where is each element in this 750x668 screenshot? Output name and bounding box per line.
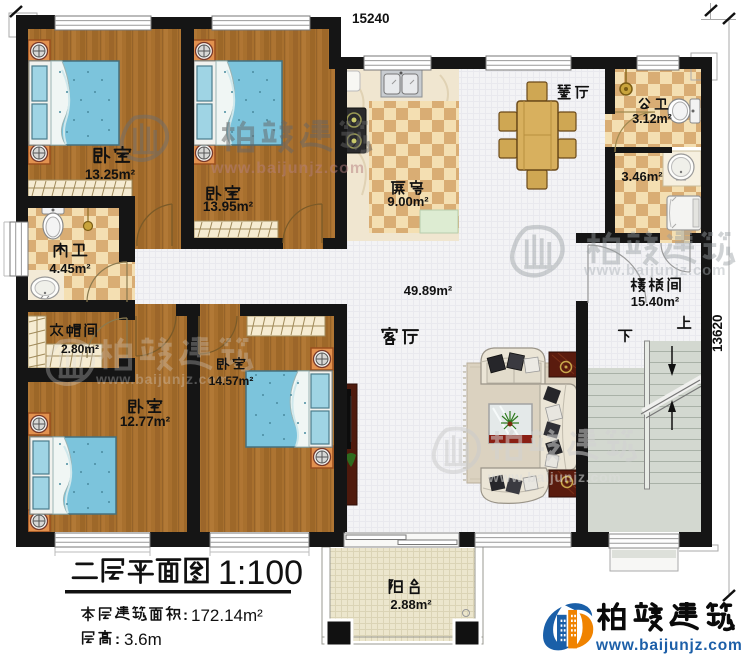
- svg-text:2.80m²: 2.80m²: [61, 342, 99, 356]
- svg-text:12.77m²: 12.77m²: [120, 414, 171, 429]
- svg-text:172.14m²: 172.14m²: [191, 606, 263, 625]
- svg-text::: :: [183, 607, 188, 624]
- svg-text:www.baijunjz.com: www.baijunjz.com: [583, 262, 726, 279]
- svg-text::: :: [115, 631, 120, 648]
- svg-text:15.40m²: 15.40m²: [631, 294, 680, 309]
- svg-text:www.baijunjz.com: www.baijunjz.com: [487, 469, 622, 485]
- svg-text:49.89m²: 49.89m²: [404, 283, 453, 298]
- svg-text:www.baijunjz.com: www.baijunjz.com: [595, 637, 743, 654]
- svg-text:3.46m²: 3.46m²: [621, 169, 663, 184]
- svg-text:9.00m²: 9.00m²: [387, 194, 429, 209]
- svg-text:1:100: 1:100: [218, 554, 303, 592]
- svg-text:3.6m: 3.6m: [124, 630, 162, 649]
- svg-text:14.57m²: 14.57m²: [209, 374, 254, 388]
- svg-text:www.baijunjz.com: www.baijunjz.com: [210, 160, 365, 177]
- svg-text:13.25m²: 13.25m²: [85, 167, 136, 182]
- svg-text:13.95m²: 13.95m²: [203, 199, 254, 214]
- svg-text:3.12m²: 3.12m²: [632, 112, 672, 126]
- svg-text:2.88m²: 2.88m²: [390, 597, 432, 612]
- svg-text:4.45m²: 4.45m²: [49, 261, 91, 276]
- svg-text:15240: 15240: [352, 11, 390, 26]
- svg-text:13620: 13620: [710, 314, 725, 352]
